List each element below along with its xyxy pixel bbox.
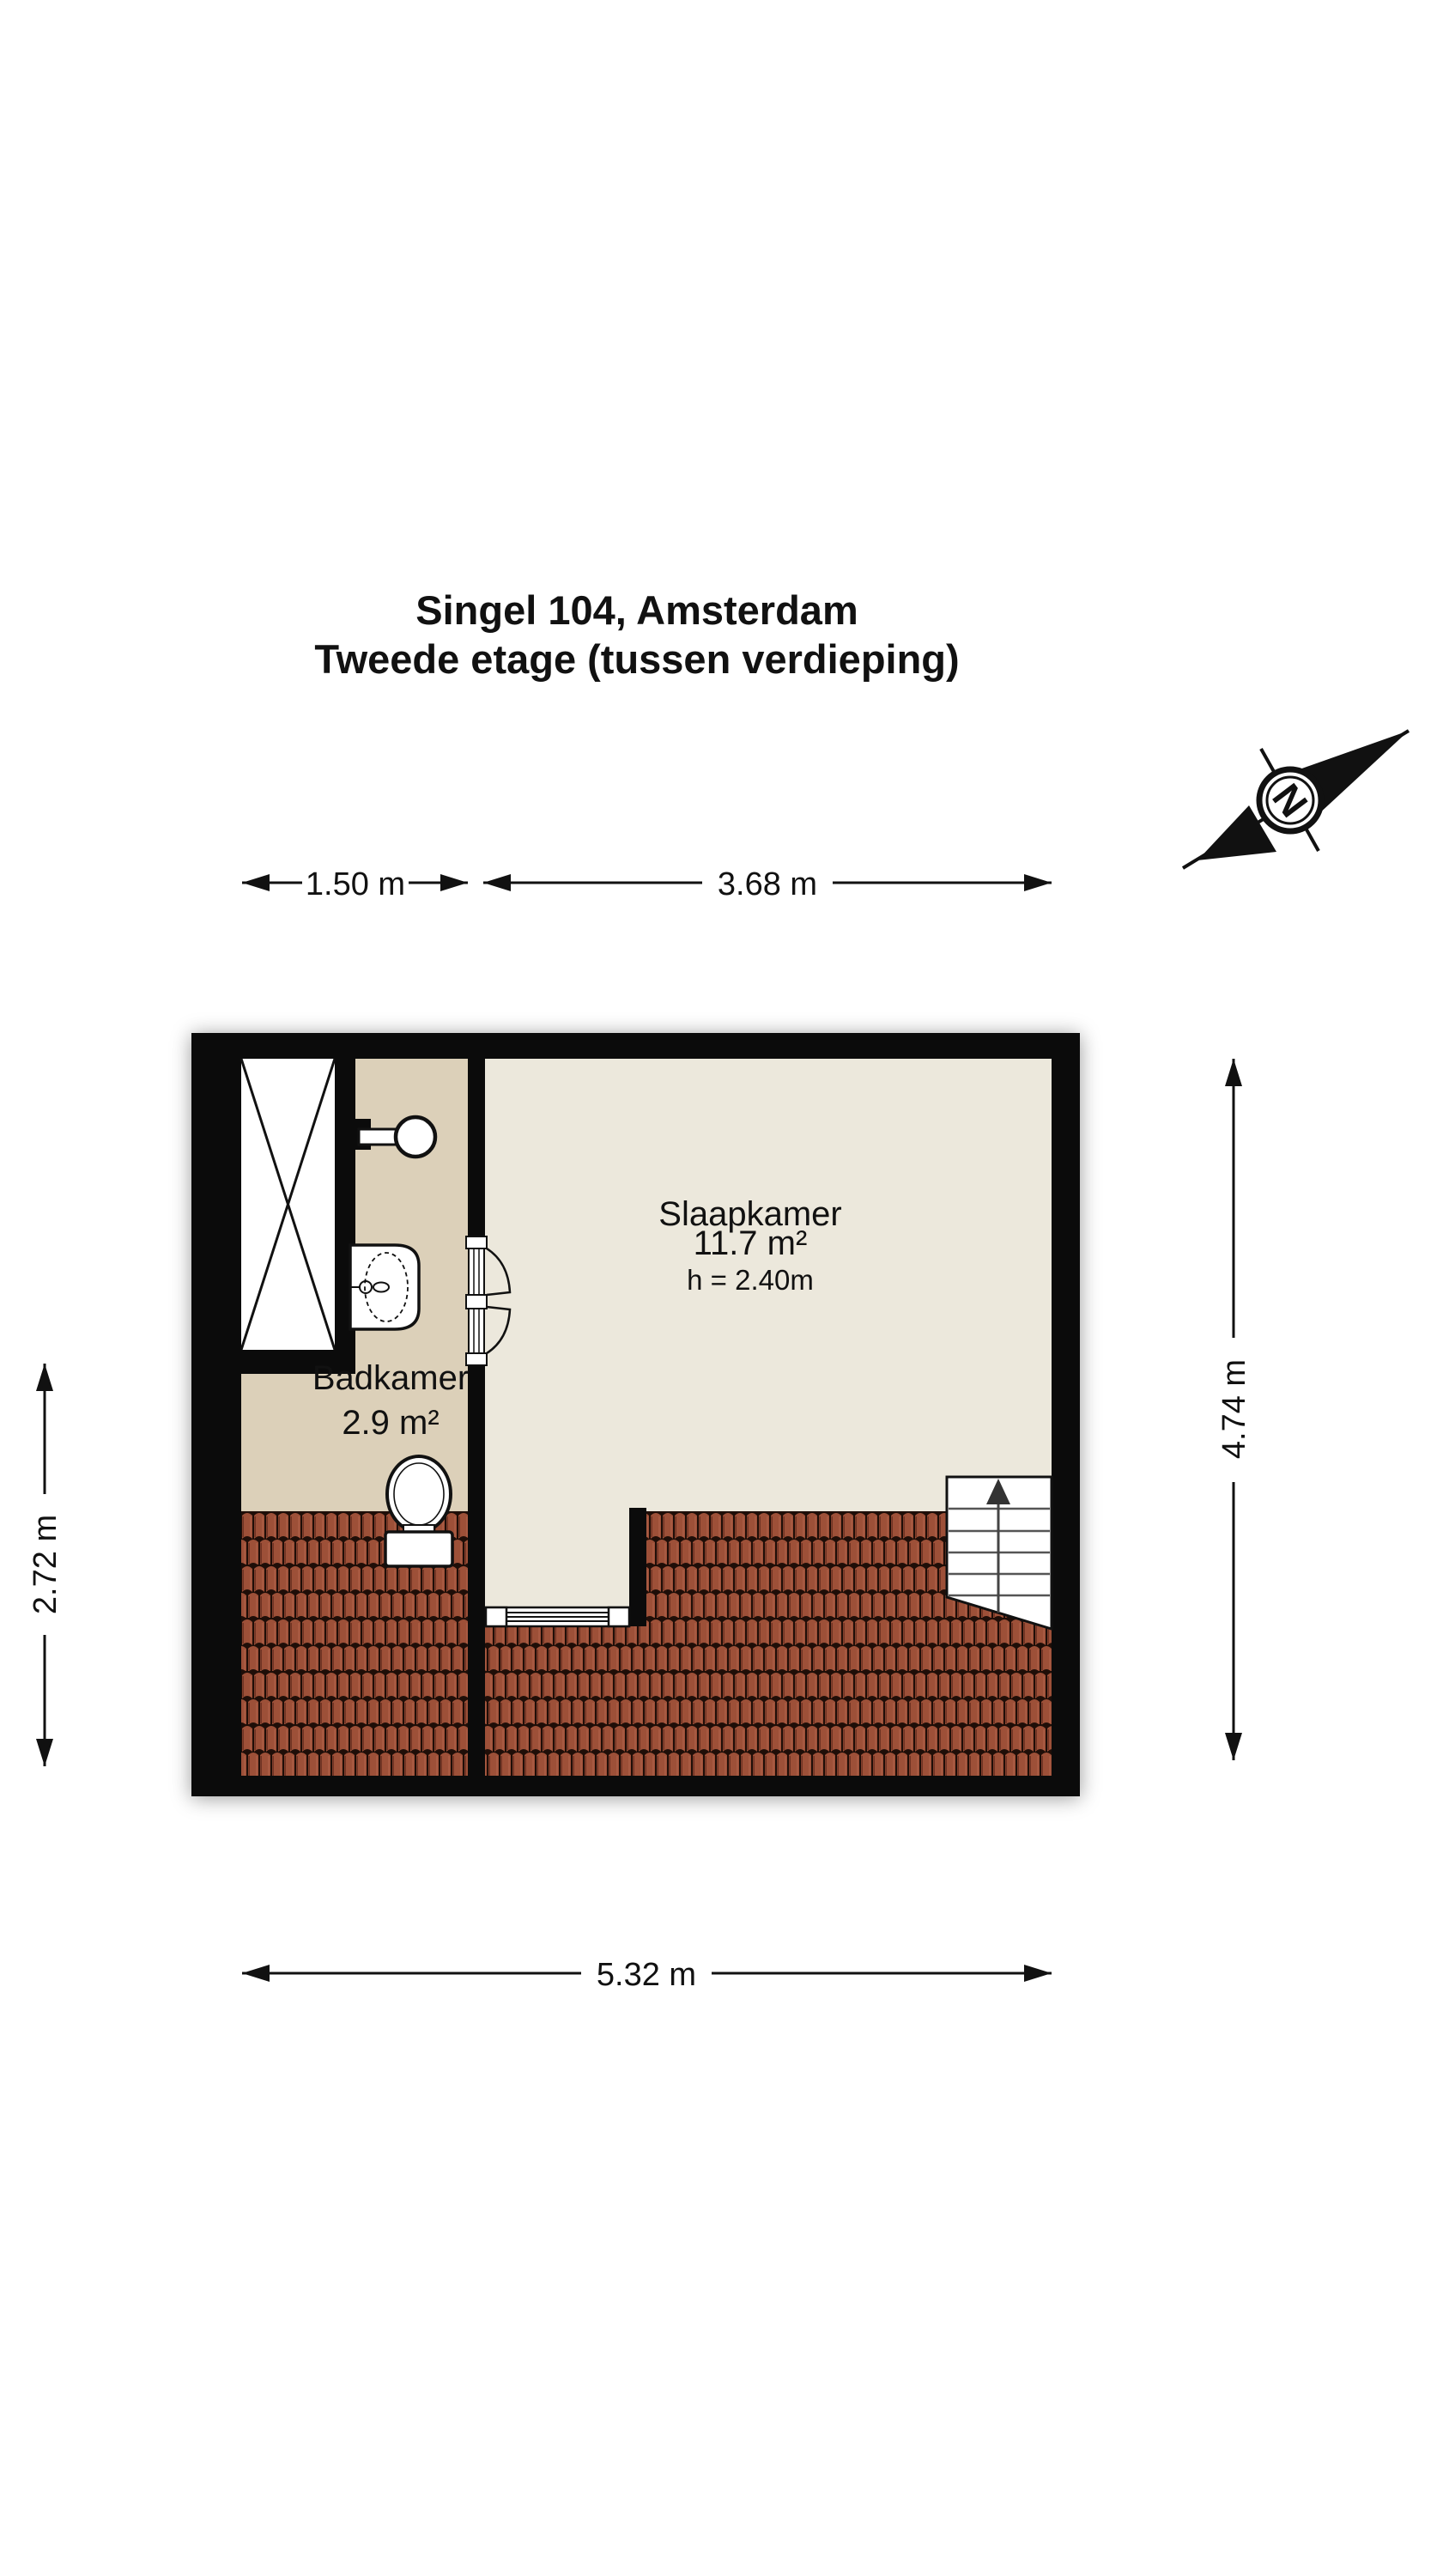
- title-line2: Tweede etage (tussen verdieping): [314, 636, 959, 682]
- bedroom-ceiling-height: h = 2.40m: [687, 1264, 814, 1296]
- roof-tiles-bedroom-bay: [485, 1626, 629, 1776]
- divider-wall-lower: [468, 1365, 485, 1776]
- toilet-icon: [385, 1456, 452, 1566]
- shower: [241, 1059, 335, 1350]
- title-line1: Singel 104, Amsterdam: [415, 587, 858, 633]
- washbasin-icon: [349, 1245, 419, 1329]
- dimension-bottom: 5.32 m: [242, 1953, 1052, 1993]
- bedroom-area: 11.7 m²: [694, 1224, 808, 1262]
- dimension-top-bedroom: 3.68 m: [483, 862, 1052, 902]
- floorplan-page: Singel 104, Amsterdam Tweede etage (tuss…: [0, 0, 1449, 2576]
- dimension-label: 4.74 m: [1216, 1359, 1252, 1459]
- page-title: Singel 104, Amsterdam Tweede etage (tuss…: [314, 587, 959, 682]
- dimension-right: 4.74 m: [1213, 1059, 1254, 1760]
- dimension-label: 5.32 m: [597, 1957, 696, 1993]
- dimension-left: 2.72 m: [24, 1364, 65, 1766]
- dimension-top-bathroom: 1.50 m: [242, 862, 468, 902]
- floorplan-drawing: Singel 104, Amsterdam Tweede etage (tuss…: [0, 0, 1449, 2576]
- dimension-label: 2.72 m: [27, 1515, 64, 1614]
- bathroom-name: Badkamer: [312, 1359, 469, 1397]
- dimension-label: 1.50 m: [306, 866, 405, 902]
- roof-tiles-bedroom: [629, 1511, 947, 1776]
- bay-wall-stub: [629, 1508, 646, 1626]
- divider-wall-upper: [468, 1059, 485, 1238]
- compass-north-icon: N: [1183, 731, 1409, 868]
- bathroom-area: 2.9 m²: [342, 1404, 439, 1442]
- floor-plan: Slaapkamer 11.7 m² h = 2.40m Badkamer 2.…: [191, 1033, 1080, 1796]
- window: [486, 1607, 629, 1626]
- dimension-label: 3.68 m: [718, 866, 817, 902]
